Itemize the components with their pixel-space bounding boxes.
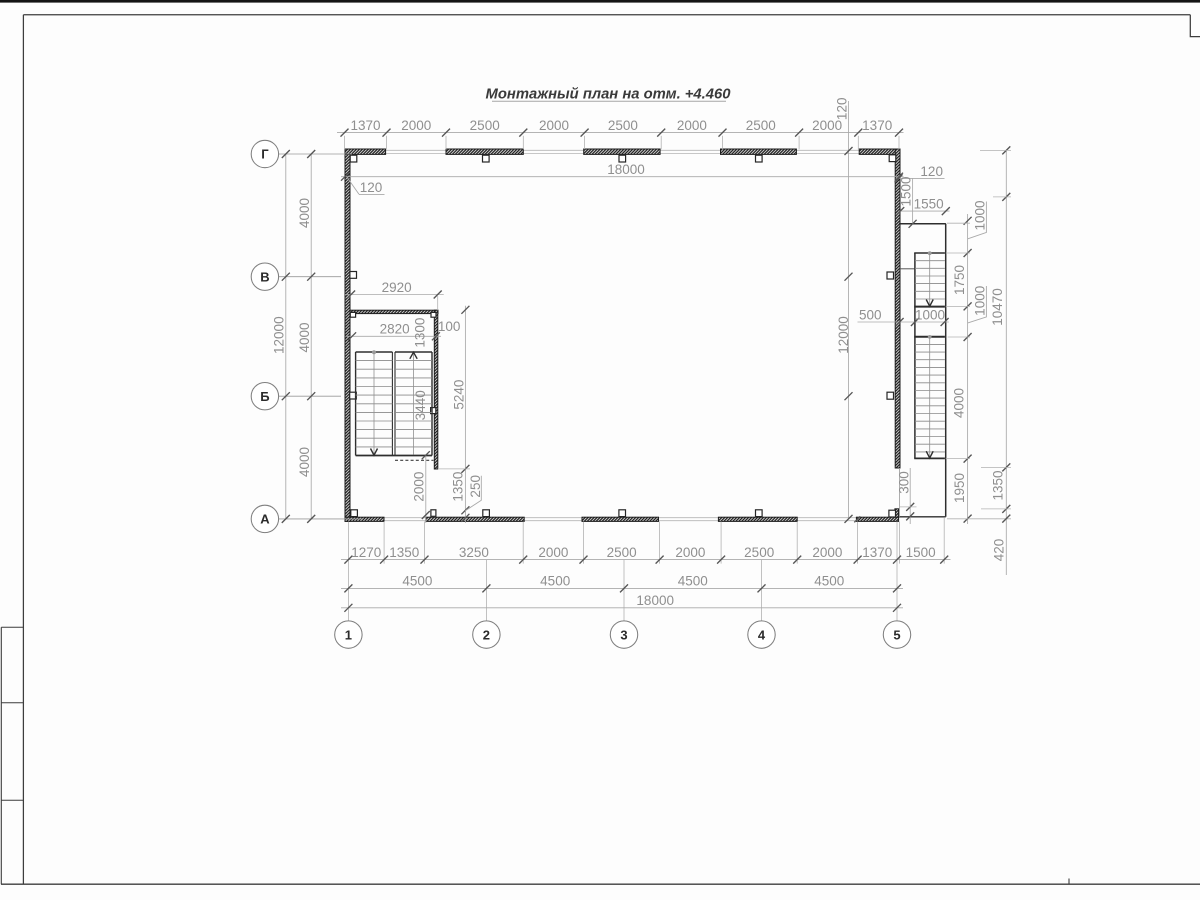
svg-text:1000: 1000	[973, 200, 988, 230]
svg-text:2000: 2000	[401, 118, 431, 133]
svg-text:2: 2	[483, 627, 490, 642]
svg-text:1350: 1350	[389, 545, 419, 560]
svg-text:2820: 2820	[380, 321, 410, 336]
svg-text:Б: Б	[260, 389, 269, 404]
svg-text:4500: 4500	[678, 574, 708, 589]
svg-text:1300: 1300	[412, 318, 427, 348]
svg-text:500: 500	[859, 308, 882, 323]
svg-text:4000: 4000	[297, 322, 312, 352]
svg-text:2000: 2000	[539, 118, 569, 133]
svg-text:120: 120	[360, 180, 383, 195]
svg-text:300: 300	[896, 471, 911, 494]
svg-text:1: 1	[345, 627, 352, 642]
svg-text:4500: 4500	[814, 574, 844, 589]
svg-text:3440: 3440	[413, 390, 428, 420]
svg-text:4000: 4000	[297, 198, 312, 228]
svg-text:2500: 2500	[607, 545, 637, 560]
svg-text:100: 100	[438, 319, 461, 334]
svg-text:2500: 2500	[608, 118, 638, 133]
svg-text:4: 4	[758, 627, 766, 642]
svg-text:4500: 4500	[540, 574, 570, 589]
svg-text:2000: 2000	[412, 472, 427, 502]
svg-text:1370: 1370	[862, 545, 892, 560]
svg-text:2000: 2000	[538, 545, 568, 560]
svg-text:2920: 2920	[382, 280, 412, 295]
svg-text:Монтажный план на отм. +4.460: Монтажный план на отм. +4.460	[486, 87, 732, 103]
svg-text:2500: 2500	[470, 118, 500, 133]
svg-text:1500: 1500	[899, 176, 914, 206]
svg-text:1000: 1000	[915, 308, 945, 323]
svg-text:2500: 2500	[744, 545, 774, 560]
svg-text:2500: 2500	[746, 118, 776, 133]
svg-text:12000: 12000	[836, 316, 851, 354]
svg-text:5240: 5240	[451, 380, 466, 410]
svg-text:1000: 1000	[973, 286, 988, 316]
svg-text:4000: 4000	[952, 388, 967, 418]
svg-text:120: 120	[920, 164, 943, 179]
svg-text:120: 120	[834, 98, 849, 121]
svg-text:3: 3	[620, 627, 627, 642]
svg-text:2000: 2000	[812, 545, 842, 560]
svg-text:1370: 1370	[350, 118, 380, 133]
svg-text:3250: 3250	[459, 545, 489, 560]
svg-text:12000: 12000	[271, 316, 286, 354]
svg-text:1750: 1750	[952, 265, 967, 295]
svg-text:250: 250	[468, 475, 483, 498]
svg-text:2000: 2000	[677, 118, 707, 133]
svg-text:1550: 1550	[914, 197, 944, 212]
svg-text:В: В	[260, 269, 269, 284]
svg-text:1500: 1500	[906, 545, 936, 560]
svg-text:Г: Г	[261, 147, 269, 162]
svg-text:420: 420	[992, 539, 1007, 562]
svg-text:А: А	[260, 512, 270, 527]
svg-text:1350: 1350	[451, 472, 466, 502]
svg-text:5: 5	[893, 627, 900, 642]
svg-text:18000: 18000	[607, 162, 645, 177]
svg-text:1350: 1350	[991, 470, 1006, 500]
svg-text:2000: 2000	[675, 545, 705, 560]
svg-text:18000: 18000	[636, 593, 674, 608]
svg-text:1950: 1950	[952, 473, 967, 503]
svg-text:1270: 1270	[351, 545, 381, 560]
svg-text:4000: 4000	[297, 447, 312, 477]
svg-text:1370: 1370	[862, 118, 892, 133]
svg-text:10470: 10470	[990, 288, 1005, 326]
svg-text:4500: 4500	[402, 574, 432, 589]
